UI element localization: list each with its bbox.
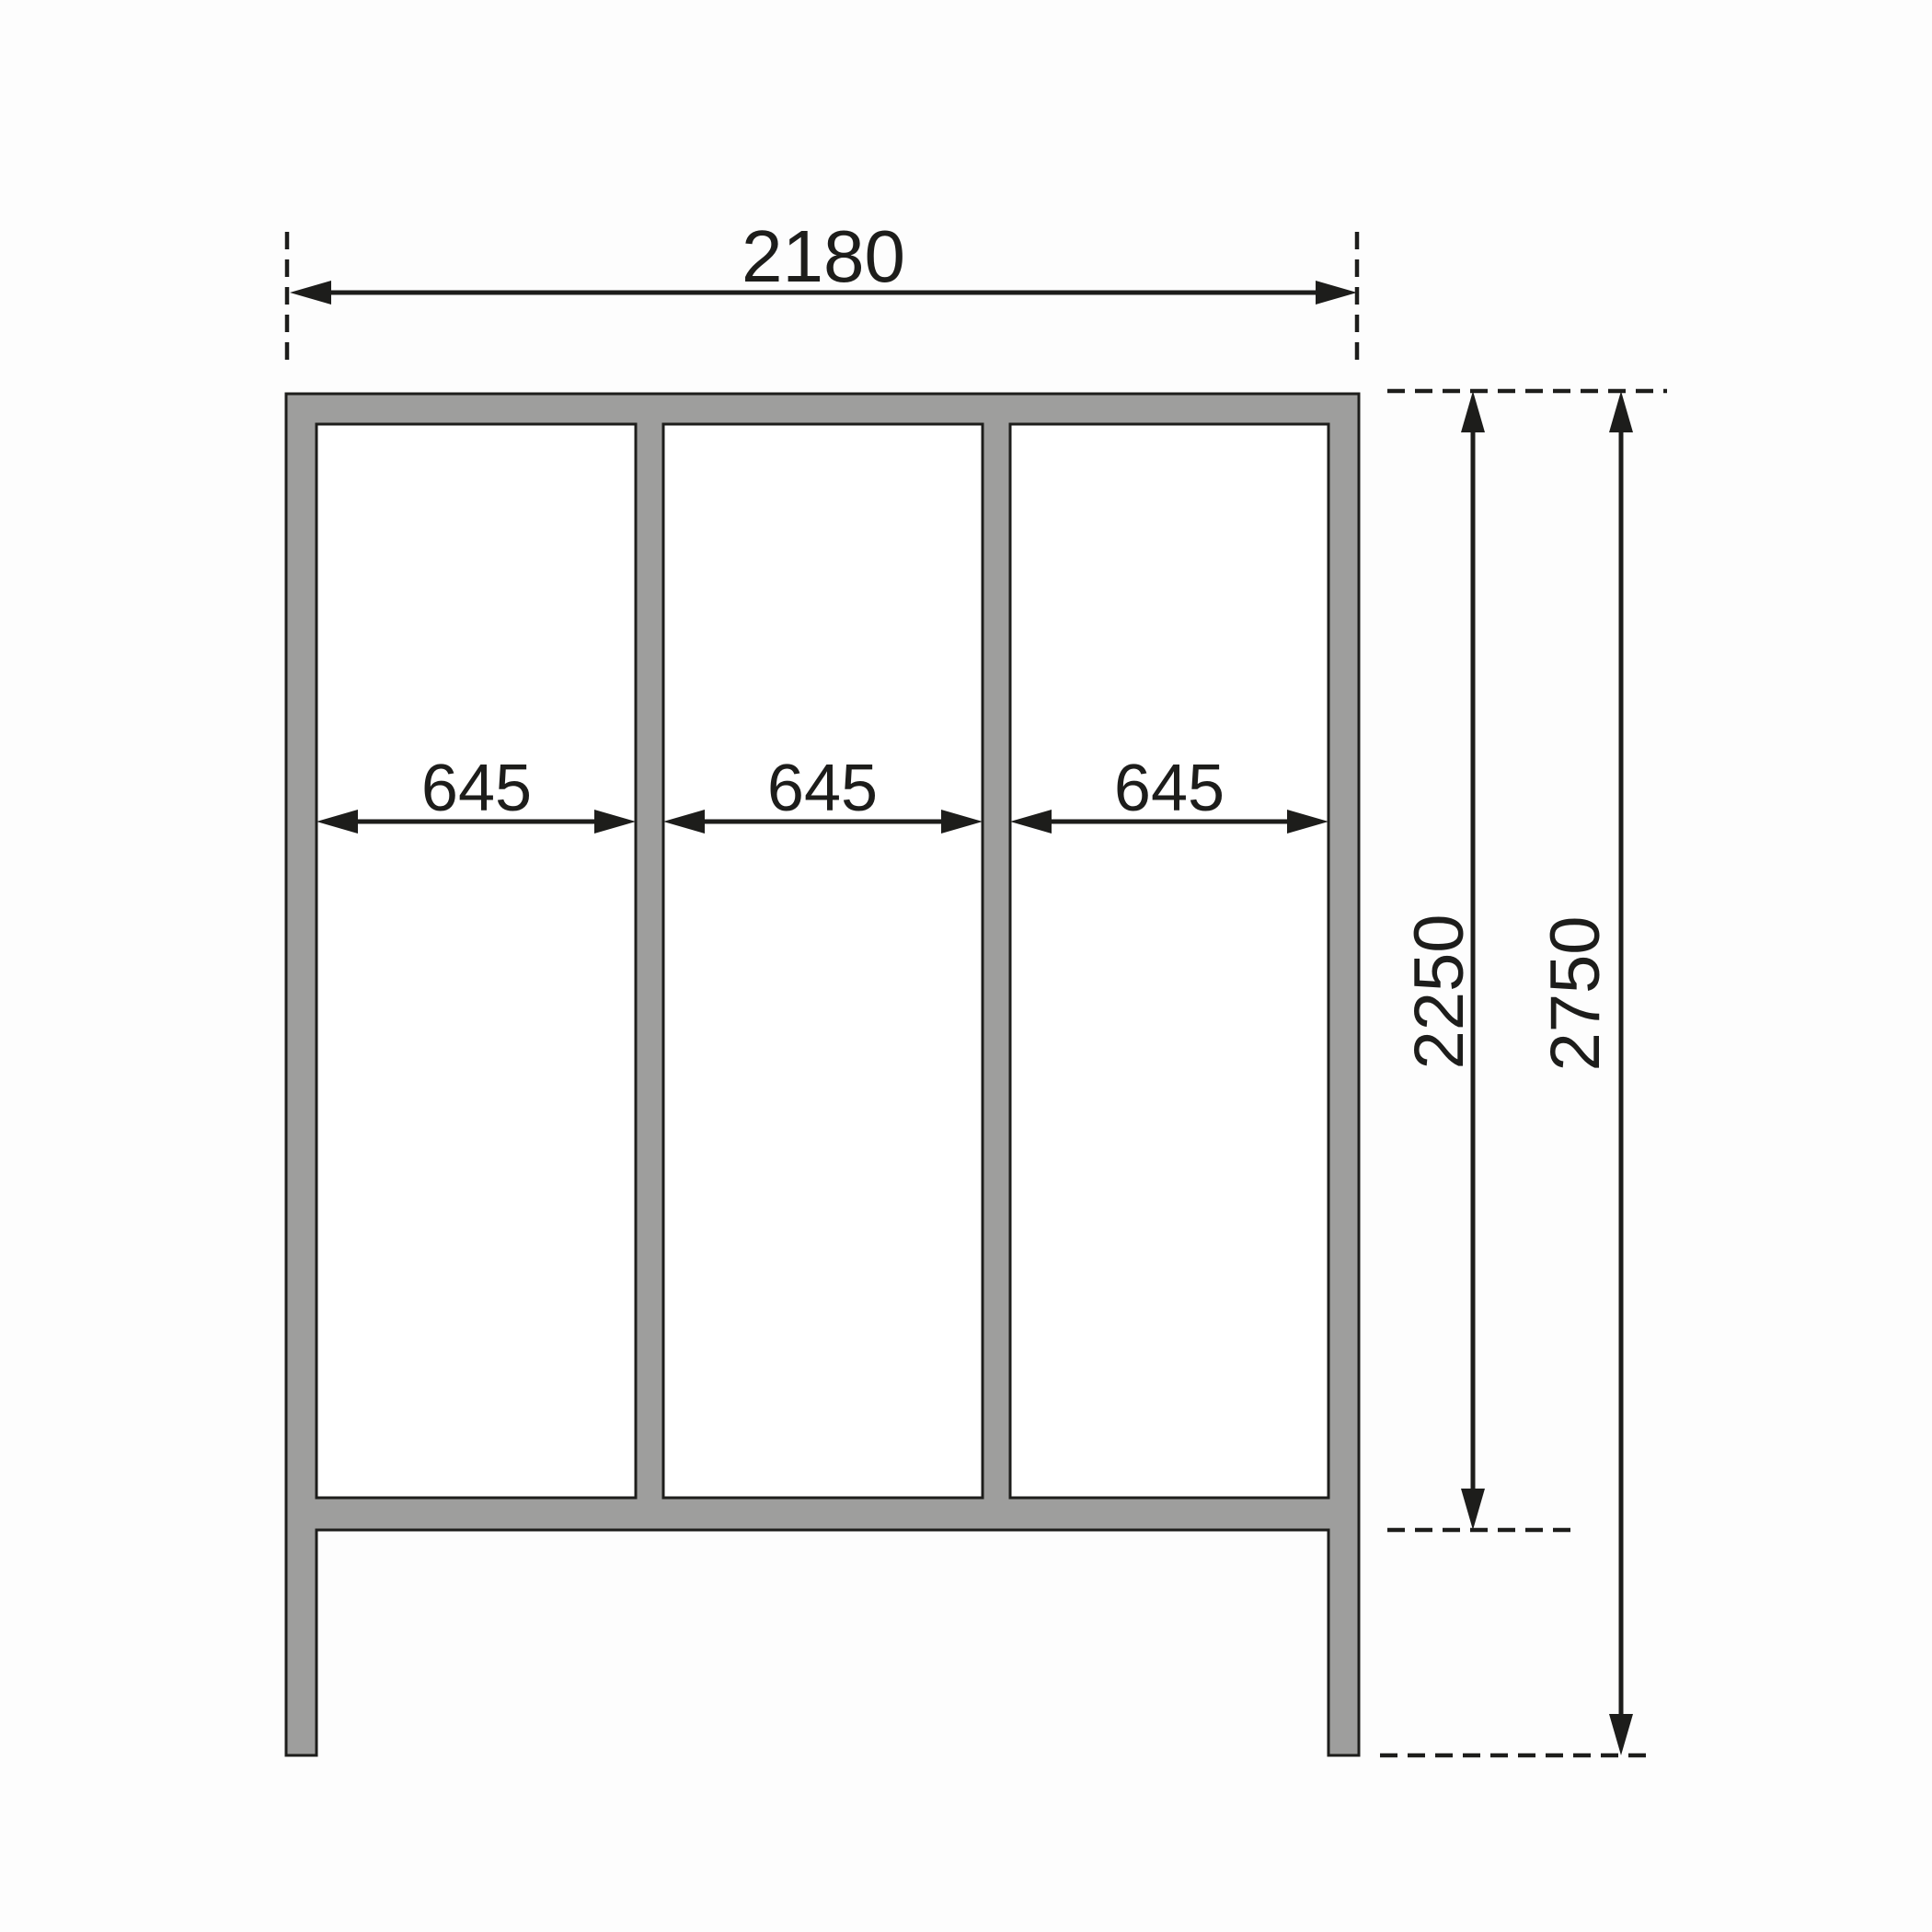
arrowhead-down-icon [1461,1489,1485,1530]
dimension-label-frame-height: 2250 [1400,914,1478,1069]
arrowhead-up-icon [1609,391,1633,432]
panel-opening-2 [663,424,983,1498]
arrowhead-left-icon [290,281,331,305]
panel-opening-1 [316,424,636,1498]
dimension-label-total-height: 2750 [1536,915,1615,1071]
dimension-overall-width: 2180 [290,215,1357,305]
dimension-frame-height: 2250 [1400,391,1485,1530]
arrowhead-up-icon [1461,391,1485,432]
arrowhead-down-icon [1609,1714,1633,1755]
technical-drawing: 2180 645 645 645 2250 2750 [0,0,1932,1932]
dimension-label-panel-2: 645 [767,752,878,825]
dimension-total-height: 2750 [1536,391,1633,1755]
arrowhead-right-icon [1316,281,1357,305]
panel-opening-3 [1010,424,1328,1498]
dimension-label-overall-width: 2180 [742,215,905,297]
frame-dimension-drawing: 2180 645 645 645 2250 2750 [0,0,1932,1932]
dimension-label-panel-1: 645 [421,752,532,825]
dimension-label-panel-3: 645 [1114,752,1225,825]
